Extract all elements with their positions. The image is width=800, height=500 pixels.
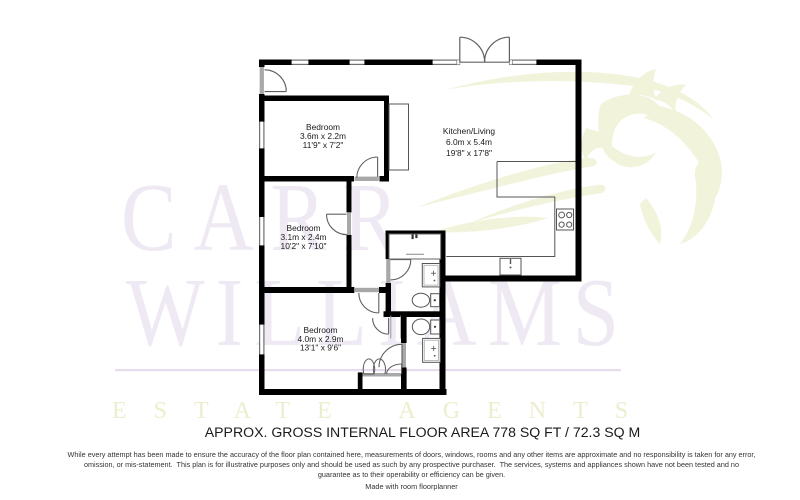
svg-text:Kitchen/Living: Kitchen/Living: [443, 126, 495, 136]
svg-text:guarantee as to their operabil: guarantee as to their operability or eff…: [318, 470, 505, 479]
svg-text:11'9" x 7'2": 11'9" x 7'2": [303, 140, 344, 150]
svg-text:ESTATE AGENTS: ESTATE AGENTS: [112, 398, 655, 424]
svg-text:13'1" x 9'6": 13'1" x 9'6": [300, 343, 341, 353]
svg-text:APPROX. GROSS INTERNAL FLOOR A: APPROX. GROSS INTERNAL FLOOR AREA 778 SQ…: [205, 424, 640, 440]
svg-text:While every attempt has been m: While every attempt has been made to ens…: [68, 450, 756, 459]
svg-text:19'8" x 17'8": 19'8" x 17'8": [446, 148, 492, 158]
svg-text:WILLIAMS: WILLIAMS: [126, 258, 630, 367]
svg-text:Made with room floorplanner: Made with room floorplanner: [365, 482, 458, 491]
svg-text:10'2" x 7'10": 10'2" x 7'10": [281, 241, 327, 251]
svg-text:6.0m x 5.4m: 6.0m x 5.4m: [446, 137, 492, 147]
svg-text:omission, or mis-statement. T: omission, or mis-statement. This plan is…: [84, 460, 739, 469]
